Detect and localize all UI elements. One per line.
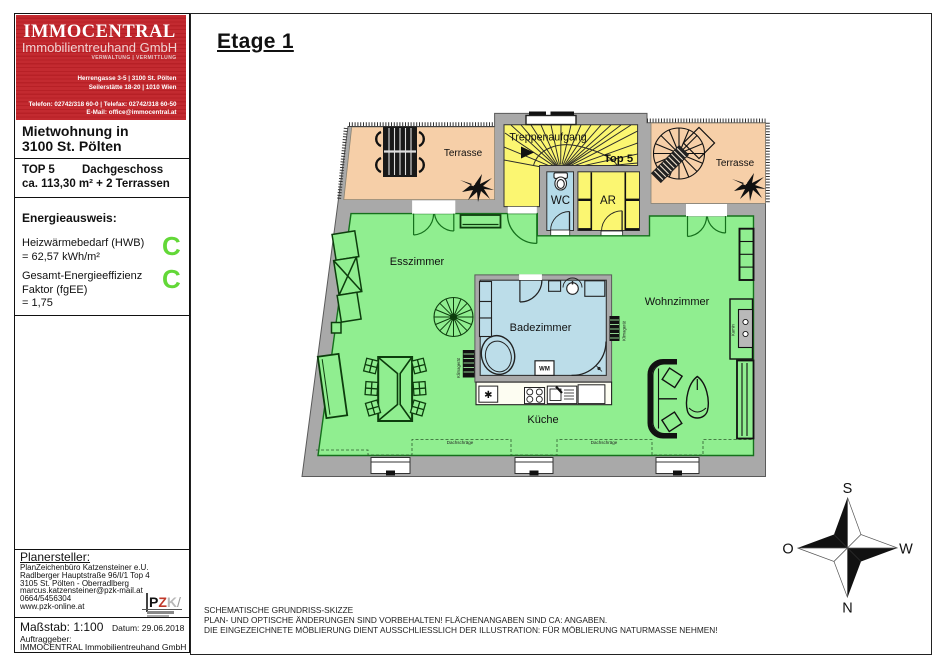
svg-text:Klimagerät: Klimagerät (456, 357, 461, 378)
svg-text:✱: ✱ (484, 390, 492, 401)
svg-text:Terrasse: Terrasse (716, 158, 755, 169)
svg-text:Treppenaufgang: Treppenaufgang (509, 132, 586, 144)
svg-text:N: N (842, 601, 852, 617)
svg-text:Dachschräge: Dachschräge (447, 440, 474, 445)
svg-text:Terrasse: Terrasse (444, 148, 483, 159)
svg-text:S: S (843, 481, 853, 497)
svg-text:W: W (899, 542, 913, 558)
svg-text:Top 5: Top 5 (604, 153, 633, 165)
svg-text:Kamin: Kamin (731, 323, 736, 336)
svg-text:Wohnzimmer: Wohnzimmer (645, 296, 710, 308)
svg-text:Klimagerät: Klimagerät (622, 320, 627, 341)
svg-text:AR: AR (600, 195, 616, 207)
svg-text:Esszimmer: Esszimmer (390, 256, 445, 268)
svg-text:Badezimmer: Badezimmer (510, 322, 572, 334)
svg-text:Dachschräge: Dachschräge (591, 440, 618, 445)
svg-text:WM: WM (539, 367, 550, 373)
svg-text:WC: WC (551, 195, 570, 207)
svg-text:O: O (782, 542, 793, 558)
svg-text:Küche: Küche (527, 414, 558, 426)
